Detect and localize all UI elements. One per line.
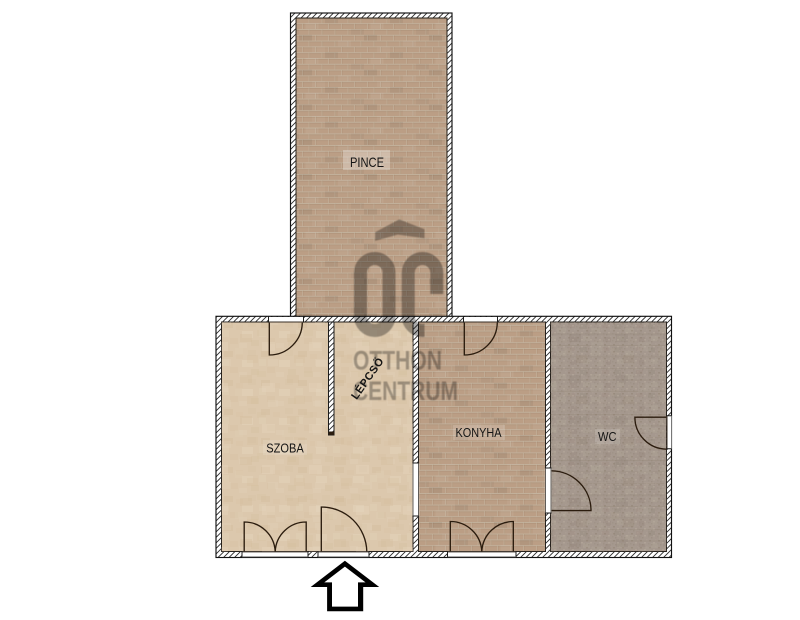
svg-text:KONYHA: KONYHA <box>456 426 503 440</box>
svg-text:WC: WC <box>598 430 617 444</box>
svg-text:SZOBA: SZOBA <box>266 442 304 456</box>
svg-text:PINCE: PINCE <box>350 154 384 170</box>
